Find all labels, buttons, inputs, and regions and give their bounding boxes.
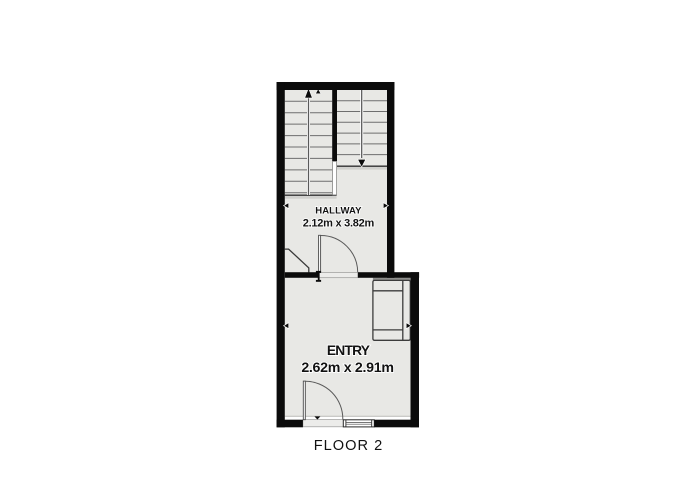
svg-text:ENTRY: ENTRY — [327, 343, 370, 358]
svg-text:2.12m x 3.82m: 2.12m x 3.82m — [303, 217, 375, 229]
svg-text:FLOOR 2: FLOOR 2 — [314, 438, 383, 454]
svg-text:HALLWAY: HALLWAY — [315, 206, 362, 217]
svg-text:2.62m x 2.91m: 2.62m x 2.91m — [301, 360, 393, 376]
